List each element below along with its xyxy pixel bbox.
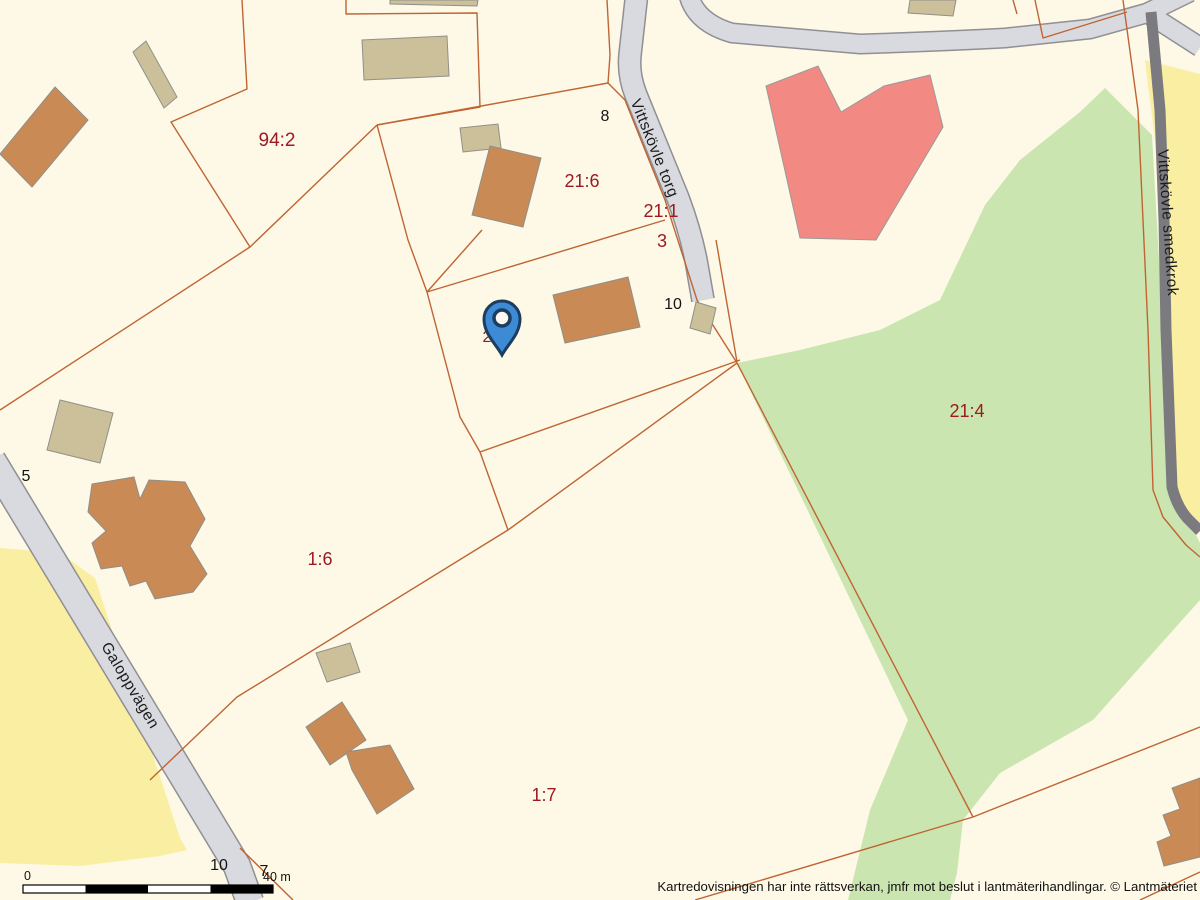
address-label-10: 10 xyxy=(664,296,682,313)
scale-zero-label: 0 xyxy=(24,869,31,883)
address-label-8: 8 xyxy=(601,108,610,125)
parcel-label-1-6: 1:6 xyxy=(307,549,332,569)
parcel-label-1-7: 1:7 xyxy=(531,785,556,805)
parcel-label-94-2: 94:2 xyxy=(259,130,296,151)
scale-bar-segment xyxy=(86,885,149,893)
building xyxy=(908,0,956,16)
building xyxy=(362,36,449,80)
address-label-5: 5 xyxy=(22,468,31,485)
map-attribution: Kartredovisningen har inte rättsverkan, … xyxy=(657,879,1197,894)
location-pin-dot xyxy=(494,310,510,326)
parcel-label-21-1: 21:1 xyxy=(643,201,678,221)
parcel-label-21-4: 21:4 xyxy=(949,401,984,421)
scale-bar-segment xyxy=(211,885,274,893)
map-svg: 94:2 21:6 21:1 3 21:4 1:6 1:7 2 8 10 5 1… xyxy=(0,0,1200,900)
address-label-10b: 10 xyxy=(210,857,228,874)
scale-distance-label: 40 m xyxy=(263,870,291,884)
parcel-label-21-6: 21:6 xyxy=(564,171,599,191)
parcel-label-3: 3 xyxy=(657,231,667,251)
map-canvas[interactable]: 94:2 21:6 21:1 3 21:4 1:6 1:7 2 8 10 5 1… xyxy=(0,0,1200,900)
